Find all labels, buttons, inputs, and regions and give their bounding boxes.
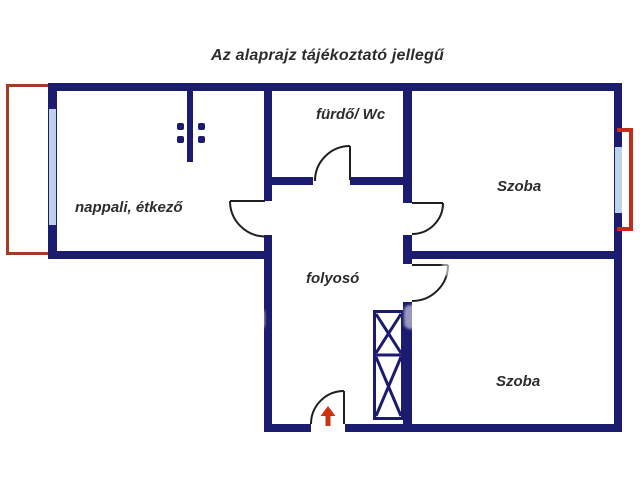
watermark <box>320 316 362 328</box>
watermark <box>404 305 432 329</box>
room-label-room-bottom: Szoba <box>496 373 540 390</box>
doors-overlay <box>0 0 640 480</box>
room-label-bathroom: fürdő/ Wc <box>316 106 385 123</box>
room-label-hallway: folyosó <box>306 270 359 287</box>
door-arc-room-top <box>412 203 443 234</box>
door-arc-bathroom <box>315 146 350 181</box>
watermark <box>251 308 265 330</box>
floor-plan: Az alaprajz tájékoztató jellegű <box>0 0 640 480</box>
watermark <box>442 260 454 276</box>
plan-title: Az alaprajz tájékoztató jellegű <box>211 47 444 65</box>
room-label-room-top: Szoba <box>497 178 541 195</box>
window-marker-right <box>617 128 633 231</box>
door-arc-living <box>230 201 266 237</box>
up-arrow-icon <box>321 406 336 426</box>
room-label-living: nappali, étkező <box>75 199 183 216</box>
